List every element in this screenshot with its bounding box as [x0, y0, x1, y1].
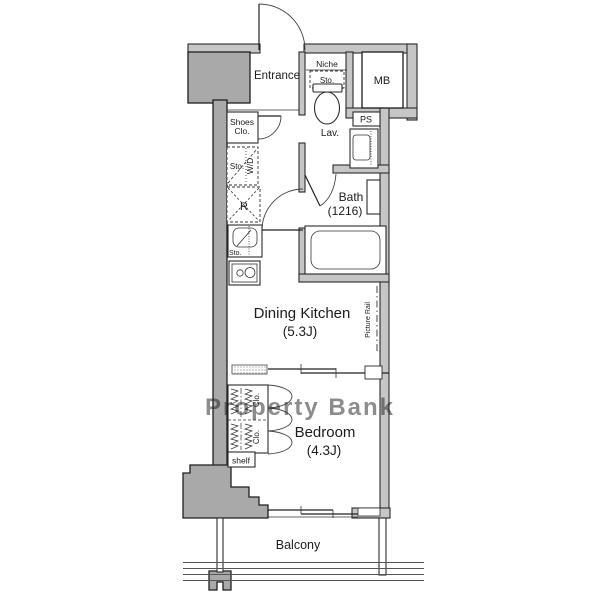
refrigerator-label: R	[240, 201, 248, 213]
closet-door-arc3	[268, 431, 292, 454]
balcony-wall-left	[217, 518, 223, 572]
sliding-door-pocket	[365, 366, 382, 379]
storage-label: Sto.	[230, 162, 244, 171]
bath-dk-wall	[299, 274, 389, 282]
entrance-label: Entrance	[254, 70, 300, 82]
window-pocket	[358, 508, 380, 516]
bath-counter	[367, 180, 380, 214]
floor-plan: MB PS Niche Sto. Lav. Bath (1216) Entran…	[0, 0, 600, 600]
lavatory-label: Lav.	[321, 128, 339, 139]
meter-box-label: MB	[374, 75, 391, 87]
corridor-door	[262, 189, 303, 230]
dining-kitchen-size-label: (5.3J)	[283, 324, 318, 339]
sliding-door-dk-bedroom	[232, 364, 389, 379]
dining-kitchen-label: Dining Kitchen	[254, 305, 351, 322]
bath-label: Bath	[339, 190, 364, 204]
bath-door-leaf	[305, 175, 320, 206]
closet-lower-label: Clo.	[252, 430, 261, 444]
counter-hatch-strip	[232, 365, 267, 374]
bathtub-outer	[305, 226, 386, 274]
corridor-door-arc	[262, 189, 303, 230]
bedroom-label: Bedroom	[295, 424, 356, 441]
niche-label: Niche	[316, 59, 338, 69]
bath-room: Bath (1216)	[305, 174, 386, 274]
stove	[229, 261, 260, 285]
balcony: Balcony	[183, 518, 424, 581]
watermark-text: Property Bank	[205, 394, 395, 421]
bath-door-arc	[320, 174, 336, 206]
pipe-space-label: PS	[360, 115, 372, 125]
shoes-closet: Shoes Clo.	[227, 112, 258, 143]
washbasin	[350, 129, 378, 168]
entrance-door	[259, 4, 305, 50]
floorplan-svg: MB PS Niche Sto. Lav. Bath (1216) Entran…	[0, 0, 600, 600]
toilet-bowl	[315, 92, 340, 124]
bath-size-label: (1216)	[328, 204, 363, 218]
entrance-wc-wall	[299, 52, 305, 115]
balcony-label: Balcony	[276, 538, 321, 552]
balcony-wall-right	[379, 518, 386, 575]
pillar-bottom-left	[183, 465, 268, 518]
toilet-tank	[313, 84, 342, 92]
toilet-right-wall	[346, 52, 353, 112]
corridor-wall-mid	[299, 143, 305, 192]
lav-door	[258, 116, 281, 139]
storage-washer-dryer: Sto. W/D	[227, 147, 258, 185]
pillar-top-left	[188, 52, 250, 103]
bedroom-size-label: (4.3J)	[307, 443, 342, 458]
picture-rail-label: Picture Rail	[365, 302, 372, 338]
entrance-door-arc	[259, 4, 305, 50]
picture-rail: Picture Rail	[365, 286, 377, 353]
window-bedroom-balcony	[268, 506, 380, 518]
shelf-label: shelf	[232, 456, 251, 466]
toilet-area: Niche Sto.	[306, 59, 347, 124]
lav-door-arc	[258, 116, 281, 139]
shoes-closet-label-2: Clo.	[234, 126, 249, 136]
sink-storage-label: Sto.	[229, 250, 242, 257]
washer-dryer-label: W/D	[245, 158, 255, 175]
kitchen-sink: Sto.	[228, 225, 262, 257]
refrigerator-space: R	[227, 187, 260, 222]
